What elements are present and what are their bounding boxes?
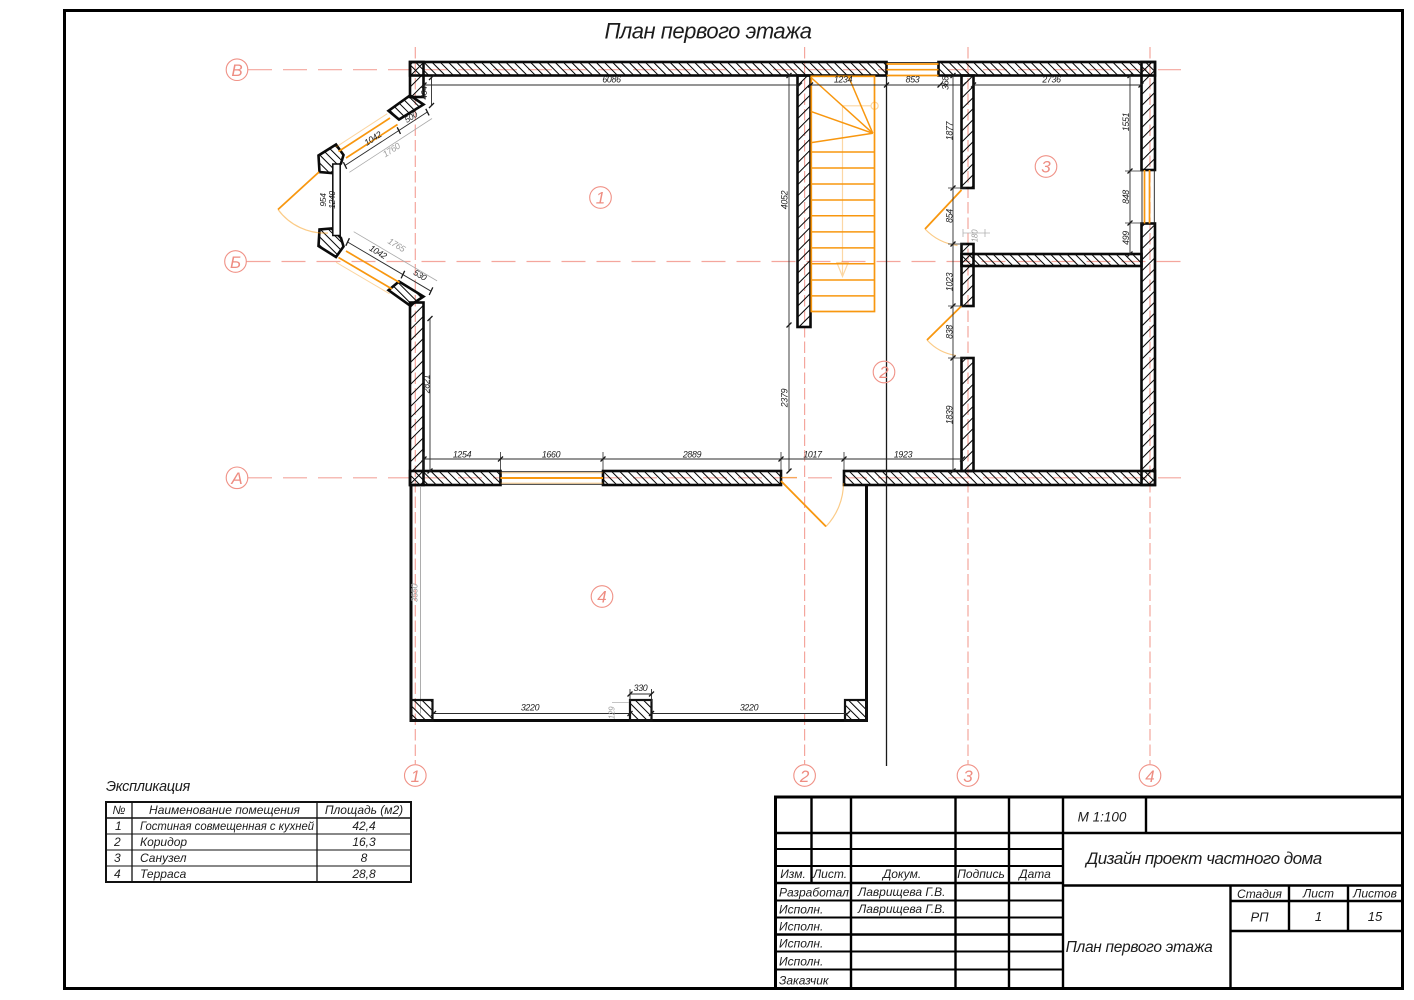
svg-text:1760: 1760 bbox=[381, 141, 402, 160]
svg-text:1254: 1254 bbox=[453, 449, 472, 459]
svg-text:530: 530 bbox=[412, 267, 429, 283]
svg-text:1042: 1042 bbox=[368, 243, 389, 261]
svg-text:М 1:100: М 1:100 bbox=[1078, 810, 1127, 825]
svg-text:Лист: Лист bbox=[1302, 887, 1334, 901]
svg-text:1234: 1234 bbox=[834, 75, 853, 85]
svg-text:Исполн.: Исполн. bbox=[779, 903, 823, 917]
svg-text:Подпись: Подпись bbox=[957, 867, 1005, 881]
svg-text:1240: 1240 bbox=[327, 191, 337, 209]
svg-text:3: 3 bbox=[1041, 157, 1051, 176]
svg-text:1551: 1551 bbox=[1121, 112, 1131, 131]
svg-text:2: 2 bbox=[799, 767, 810, 786]
svg-text:Стадия: Стадия bbox=[1237, 887, 1283, 901]
svg-text:Исполн.: Исполн. bbox=[779, 955, 823, 969]
svg-text:42,4: 42,4 bbox=[352, 819, 376, 833]
svg-text:838: 838 bbox=[945, 325, 955, 339]
svg-text:2736: 2736 bbox=[1041, 75, 1061, 85]
svg-text:Докум.: Докум. bbox=[881, 867, 921, 881]
svg-text:Листов: Листов bbox=[1352, 887, 1397, 901]
svg-text:Санузел: Санузел bbox=[140, 851, 187, 865]
svg-text:2379: 2379 bbox=[780, 388, 790, 408]
svg-text:3220: 3220 bbox=[740, 703, 759, 713]
svg-text:854: 854 bbox=[945, 209, 955, 223]
svg-text:4: 4 bbox=[597, 587, 606, 606]
svg-text:Разработал: Разработал bbox=[779, 886, 849, 900]
svg-text:848: 848 bbox=[1121, 190, 1131, 204]
svg-text:№: № bbox=[113, 803, 126, 817]
svg-text:8: 8 bbox=[361, 851, 368, 865]
svg-text:499: 499 bbox=[1121, 231, 1131, 245]
svg-text:1023: 1023 bbox=[945, 272, 955, 291]
svg-text:РП: РП bbox=[1250, 910, 1269, 925]
svg-text:28,8: 28,8 bbox=[351, 867, 376, 881]
svg-text:464: 464 bbox=[419, 86, 429, 100]
svg-text:2889: 2889 bbox=[682, 449, 702, 459]
svg-text:План первого этажа: План первого этажа bbox=[604, 19, 811, 44]
svg-text:2: 2 bbox=[878, 363, 889, 382]
svg-text:1042: 1042 bbox=[362, 129, 383, 148]
svg-text:В: В bbox=[231, 61, 242, 80]
svg-text:А: А bbox=[230, 469, 242, 488]
svg-text:Лаврищева Г.В.: Лаврищева Г.В. bbox=[857, 885, 945, 899]
svg-text:3: 3 bbox=[963, 767, 973, 786]
svg-text:3: 3 bbox=[114, 851, 121, 865]
svg-text:4: 4 bbox=[1145, 767, 1154, 786]
svg-text:3550: 3550 bbox=[410, 583, 420, 602]
svg-text:853: 853 bbox=[906, 75, 920, 85]
svg-text:2: 2 bbox=[113, 835, 121, 849]
svg-text:4: 4 bbox=[114, 867, 121, 881]
svg-text:Лаврищева Г.В.: Лаврищева Г.В. bbox=[857, 902, 945, 916]
svg-text:1017: 1017 bbox=[803, 449, 823, 459]
svg-text:1: 1 bbox=[411, 767, 420, 786]
svg-text:1877: 1877 bbox=[945, 120, 955, 140]
svg-text:Лист.: Лист. bbox=[812, 867, 847, 881]
svg-text:1: 1 bbox=[1315, 909, 1322, 924]
svg-text:180: 180 bbox=[971, 229, 980, 242]
svg-text:4052: 4052 bbox=[780, 190, 790, 209]
svg-text:Б: Б bbox=[230, 253, 241, 272]
svg-text:368: 368 bbox=[941, 76, 951, 90]
svg-text:Исполн.: Исполн. bbox=[779, 920, 823, 934]
svg-text:1: 1 bbox=[596, 188, 605, 207]
svg-text:Дизайн проект частного дома: Дизайн проект частного дома bbox=[1084, 849, 1322, 868]
svg-text:1923: 1923 bbox=[894, 449, 913, 459]
svg-text:Дата: Дата bbox=[1017, 867, 1051, 881]
svg-text:15: 15 bbox=[1368, 909, 1383, 924]
svg-text:Наименование помещения: Наименование помещения bbox=[149, 803, 300, 817]
svg-text:План первого этажа: План первого этажа bbox=[1066, 939, 1214, 956]
svg-text:1: 1 bbox=[115, 819, 122, 833]
svg-text:6086: 6086 bbox=[602, 75, 621, 85]
svg-text:1765: 1765 bbox=[386, 236, 407, 254]
svg-text:3220: 3220 bbox=[521, 703, 540, 713]
svg-text:Гостиная совмещенная с кухн: Гостиная совмещенная с кухней bbox=[140, 819, 314, 833]
svg-text:Изм.: Изм. bbox=[780, 867, 806, 881]
svg-text:2821: 2821 bbox=[422, 374, 432, 394]
svg-text:Терраса: Терраса bbox=[140, 867, 187, 881]
svg-text:1660: 1660 bbox=[542, 449, 561, 459]
svg-text:129: 129 bbox=[608, 706, 617, 719]
svg-text:Заказчик: Заказчик bbox=[779, 974, 830, 988]
svg-text:16,3: 16,3 bbox=[352, 835, 376, 849]
svg-text:Коридор: Коридор bbox=[140, 835, 187, 849]
svg-text:330: 330 bbox=[634, 683, 648, 693]
svg-text:Экспликация: Экспликация bbox=[106, 779, 190, 795]
svg-text:Площадь (м2): Площадь (м2) bbox=[325, 803, 403, 817]
svg-text:1839: 1839 bbox=[945, 405, 955, 424]
svg-text:Исполн.: Исполн. bbox=[779, 937, 823, 951]
